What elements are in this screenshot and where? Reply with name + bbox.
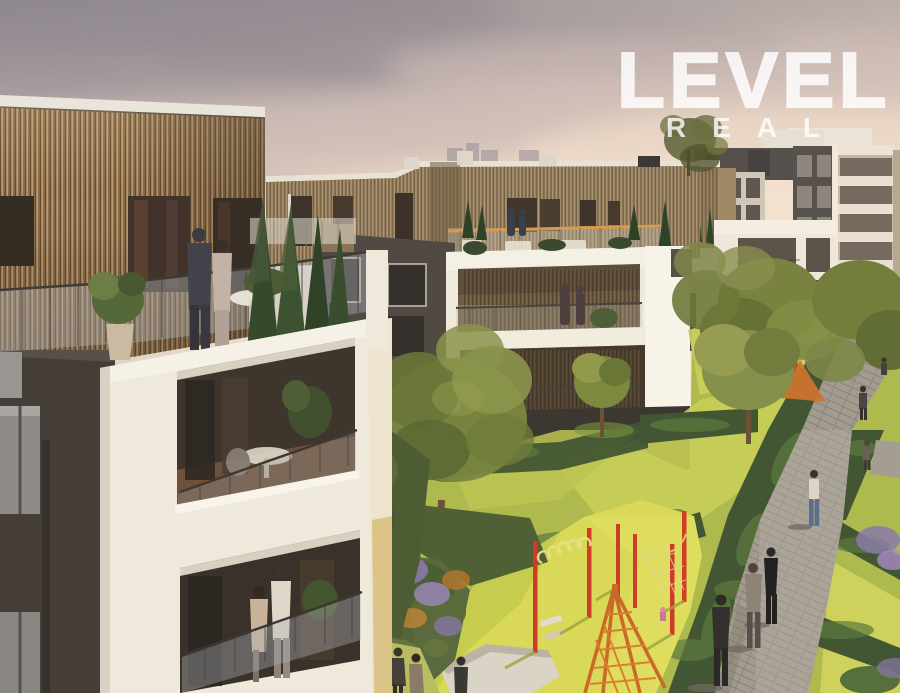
svg-text:REAL: REAL: [666, 112, 846, 143]
svg-text:LEVEL: LEVEL: [617, 36, 891, 124]
